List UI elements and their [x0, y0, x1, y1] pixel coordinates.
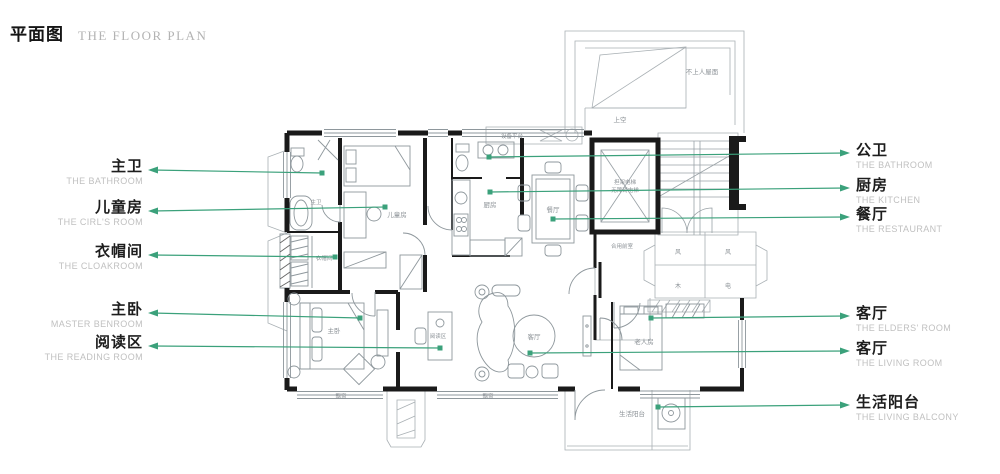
label-en: THE CLOAKROOM	[59, 262, 143, 271]
label-zh: 厨房	[856, 178, 920, 193]
leader-living	[528, 348, 851, 356]
label-zh: 生活阳台	[856, 395, 959, 410]
label-en: THE LIVING BALCONY	[856, 413, 959, 422]
svg-text:老人房: 老人房	[634, 337, 654, 346]
label-en: THE KITCHEN	[856, 196, 920, 205]
svg-text:风: 风	[725, 249, 731, 256]
master-bed	[288, 293, 388, 385]
svg-text:生活阳台: 生活阳台	[619, 409, 645, 418]
label-zh: 主卧	[51, 302, 143, 317]
leader-elders	[649, 313, 851, 321]
svg-text:风: 风	[675, 249, 681, 256]
master-bath-fixtures	[290, 140, 338, 230]
leader-reading	[148, 343, 443, 351]
leader-public-bath	[487, 150, 851, 160]
label-zh: 客厅	[856, 341, 943, 356]
label-zh: 阅读区	[45, 335, 143, 350]
label-master-bathroom: 主卫 THE BATHROOM	[66, 159, 143, 186]
leader-kitchen	[488, 185, 851, 195]
svg-text:阅读区: 阅读区	[430, 332, 447, 340]
svg-text:衣帽间: 衣帽间	[316, 254, 333, 262]
label-zh: 客厅	[856, 306, 951, 321]
label-cloakroom: 衣帽间 THE CLOAKROOM	[59, 244, 143, 271]
label-en: THE BATHROOM	[66, 177, 143, 186]
label-en: THE READING ROOM	[45, 353, 143, 362]
svg-text:合用前室: 合用前室	[611, 242, 634, 250]
svg-text:担架电梯: 担架电梯	[614, 178, 637, 186]
svg-text:儿童房: 儿童房	[387, 210, 407, 219]
label-en: THE RESTAURANT	[856, 225, 942, 234]
svg-text:飘窗: 飘窗	[482, 392, 494, 400]
leader-master-bath	[148, 167, 325, 176]
label-zh: 主卫	[66, 159, 143, 174]
label-living-room: 客厅 THE LIVING ROOM	[856, 341, 943, 368]
label-zh: 公卫	[856, 143, 933, 158]
plan-room-texts: 不上人屋面 上空 设备平台 厨房 餐厅 担架电梯 无障碍电梯 合用前室 儿童房 …	[310, 67, 731, 418]
living-room-furniture	[475, 285, 591, 381]
label-en: THE BATHROOM	[856, 161, 933, 170]
svg-text:木: 木	[675, 282, 681, 290]
label-en: THE CIRL'S ROOM	[58, 218, 143, 227]
label-kitchen: 厨房 THE KITCHEN	[856, 178, 920, 205]
svg-text:上空: 上空	[614, 115, 628, 124]
label-zh: 餐厅	[856, 207, 942, 222]
label-kids-room: 儿童房 THE CIRL'S ROOM	[58, 200, 143, 227]
label-restaurant: 餐厅 THE RESTAURANT	[856, 207, 942, 234]
label-elders-room: 客厅 THE ELDERS' ROOM	[856, 306, 951, 333]
kids-room-furniture	[344, 146, 422, 289]
windows	[280, 130, 746, 399]
doors	[322, 205, 640, 420]
leader-cloakroom	[148, 252, 338, 260]
leader-lines	[148, 150, 850, 410]
washing-machine	[658, 398, 685, 429]
svg-text:飘窗: 飘窗	[335, 392, 347, 400]
svg-text:不上人屋面: 不上人屋面	[686, 67, 719, 76]
label-living-balcony: 生活阳台 THE LIVING BALCONY	[856, 395, 959, 422]
label-en: THE LIVING ROOM	[856, 359, 943, 368]
label-zh: 儿童房	[58, 200, 143, 215]
exterior-outline	[268, 31, 767, 450]
label-zh: 衣帽间	[59, 244, 143, 259]
svg-text:设备平台: 设备平台	[501, 132, 524, 140]
label-en: THE ELDERS' ROOM	[856, 324, 951, 333]
svg-text:厨房: 厨房	[484, 200, 497, 209]
svg-text:餐厅: 餐厅	[547, 205, 561, 214]
furniture	[288, 140, 704, 429]
leader-master-bed	[148, 310, 363, 321]
elders-bed	[620, 304, 704, 370]
svg-text:客厅: 客厅	[528, 332, 542, 341]
svg-text:主卧: 主卧	[328, 326, 342, 335]
label-public-bathroom: 公卫 THE BATHROOM	[856, 143, 933, 170]
floor-plan-drawing: 不上人屋面 上空 设备平台 厨房 餐厅 担架电梯 无障碍电梯 合用前室 儿童房 …	[0, 0, 1000, 474]
svg-text:主卫: 主卫	[310, 198, 322, 206]
svg-text:电: 电	[725, 282, 731, 290]
label-master-bedroom: 主卧 MASTER BENROOM	[51, 302, 143, 329]
label-reading-room: 阅读区 THE READING ROOM	[45, 335, 143, 362]
label-en: MASTER BENROOM	[51, 320, 143, 329]
cloakroom-wardrobes	[291, 236, 312, 288]
floor-plan-page: 平面图 THE FLOOR PLAN	[0, 0, 1000, 474]
